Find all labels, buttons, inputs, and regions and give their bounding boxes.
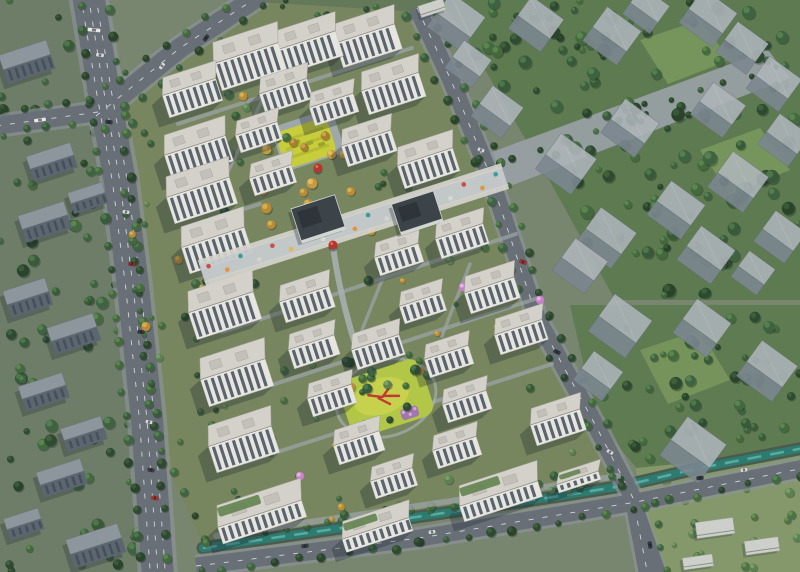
tree-highlight — [579, 513, 583, 517]
tree-highlight — [121, 190, 125, 194]
tree-highlight — [640, 438, 644, 442]
tree-highlight — [788, 393, 792, 397]
tree-highlight — [777, 32, 783, 38]
tree-highlight — [737, 435, 741, 439]
tree-highlight — [704, 152, 711, 159]
tree-highlight — [451, 116, 455, 120]
tree-highlight — [529, 267, 533, 271]
tree-highlight — [114, 560, 119, 565]
tree-highlight — [22, 105, 26, 109]
shop-awning — [238, 254, 243, 259]
tree-highlight — [109, 267, 113, 271]
tree-highlight — [727, 314, 732, 319]
vehicle-glass — [38, 118, 42, 121]
tree-highlight — [407, 352, 410, 355]
tree-highlight — [499, 244, 504, 249]
tree-highlight — [140, 352, 144, 356]
tree-highlight — [14, 482, 19, 487]
tree-highlight — [461, 84, 465, 88]
tree-highlight — [466, 535, 469, 538]
tree-highlight — [589, 399, 593, 403]
shop-awning — [366, 213, 371, 218]
shop-awning — [493, 172, 498, 177]
tree-highlight — [129, 119, 134, 124]
tree-highlight — [491, 64, 494, 67]
tree-highlight — [735, 401, 740, 406]
tree-highlight — [24, 429, 27, 432]
tree-highlight — [445, 476, 450, 481]
car — [740, 468, 747, 473]
tree-highlight — [199, 567, 202, 570]
tree-highlight — [534, 88, 537, 91]
tree-highlight — [150, 316, 153, 319]
tree-highlight — [87, 167, 92, 172]
tree-highlight — [752, 514, 756, 518]
tree-highlight — [93, 519, 99, 525]
tree-highlight — [660, 237, 664, 241]
tree-highlight — [301, 144, 305, 148]
tree-highlight — [575, 44, 578, 47]
tree-highlight — [402, 12, 407, 17]
tree-highlight — [658, 545, 661, 548]
tree-highlight — [138, 309, 141, 312]
tree-highlight — [42, 123, 46, 127]
tree-highlight — [490, 34, 494, 38]
tree-highlight — [337, 496, 340, 499]
shop-awning — [270, 243, 275, 248]
tree-highlight — [148, 141, 152, 145]
tree-highlight — [773, 476, 777, 480]
tree-highlight — [154, 409, 158, 413]
tree-highlight — [81, 529, 86, 534]
tree-highlight — [381, 181, 384, 184]
tree-highlight — [134, 532, 139, 537]
tree-highlight — [162, 530, 167, 535]
tree-highlight — [671, 378, 677, 384]
tree-highlight — [794, 534, 798, 538]
shop-awning — [480, 186, 485, 191]
tree-highlight — [79, 26, 84, 31]
tree-highlight — [104, 417, 110, 423]
car — [696, 476, 703, 481]
tree-highlight — [268, 221, 272, 225]
tree-highlight — [588, 68, 594, 74]
tree-highlight — [364, 7, 367, 10]
tree-highlight — [16, 364, 21, 369]
tree-highlight — [400, 278, 403, 281]
tree-highlight — [488, 198, 493, 203]
tree-highlight — [117, 77, 121, 81]
tree-highlight — [296, 554, 300, 558]
tree-highlight — [646, 385, 650, 389]
pink-blossom-highlight — [537, 297, 541, 301]
tree-highlight — [759, 434, 763, 438]
tree-highlight — [300, 189, 304, 193]
tree-highlight — [443, 537, 446, 540]
tree-highlight — [131, 258, 135, 262]
tree-highlight — [669, 98, 672, 101]
tree-highlight — [195, 47, 199, 51]
tree-highlight — [559, 46, 563, 50]
tree-highlight — [676, 404, 680, 408]
vehicle-glass — [140, 330, 143, 333]
shop-awning — [461, 182, 466, 187]
tree-highlight — [330, 517, 333, 520]
tree-highlight — [79, 3, 83, 7]
tree-highlight — [764, 322, 770, 328]
tree-highlight — [142, 322, 147, 327]
tree-highlight — [435, 331, 438, 334]
tree-highlight — [403, 383, 406, 386]
tree-highlight — [672, 543, 675, 546]
tree-highlight — [652, 196, 656, 200]
tree-highlight — [631, 442, 636, 447]
tree-highlight — [508, 527, 513, 532]
tree-highlight — [473, 101, 477, 105]
tree-highlight — [677, 103, 682, 108]
tree-highlight — [18, 265, 24, 271]
tree-highlight — [162, 505, 166, 509]
tree-highlight — [24, 137, 28, 141]
tree-highlight — [561, 374, 565, 378]
tree-highlight — [583, 109, 588, 114]
tree-highlight — [27, 546, 31, 550]
tree-highlight — [82, 73, 86, 77]
tree-highlight — [624, 201, 628, 205]
tree-highlight — [751, 424, 755, 428]
tree-highlight — [661, 352, 664, 355]
tree-highlight — [780, 423, 785, 428]
tree-highlight — [414, 538, 418, 542]
tree-highlight — [283, 134, 288, 139]
tree-highlight — [666, 426, 672, 432]
tree-highlight — [192, 513, 195, 516]
tree-highlight — [103, 84, 106, 87]
red-sphere-sculpture — [314, 164, 323, 173]
car — [105, 120, 112, 125]
tree-highlight — [82, 50, 87, 55]
tree-highlight — [796, 221, 799, 224]
tree-highlight — [393, 546, 398, 551]
tree-highlight — [596, 167, 599, 170]
tree-highlight — [118, 389, 122, 393]
tree-highlight — [655, 521, 659, 525]
masterplan-scene — [0, 0, 800, 572]
tree-highlight — [751, 312, 756, 317]
tree-highlight — [163, 42, 167, 46]
tree-highlight — [262, 204, 267, 209]
tree-highlight — [673, 109, 680, 116]
tree-highlight — [572, 7, 576, 11]
tree-highlight — [652, 69, 657, 74]
tree-highlight — [689, 530, 693, 534]
tree-highlight — [500, 42, 505, 47]
tree-highlight — [671, 162, 674, 165]
tree-highlight — [158, 459, 163, 464]
tree-highlight — [596, 445, 599, 448]
tree-highlight — [691, 520, 695, 524]
tree-highlight — [743, 355, 746, 358]
tree-highlight — [38, 325, 43, 330]
tree-highlight — [451, 504, 455, 508]
pink-blossom-highlight — [297, 473, 301, 477]
tree-highlight — [159, 323, 163, 327]
tree-highlight — [170, 468, 174, 472]
tree-highlight — [46, 420, 52, 426]
tree-highlight — [53, 288, 57, 292]
tree-highlight — [785, 518, 789, 522]
tree-highlight — [665, 495, 669, 499]
tree-highlight — [526, 249, 530, 253]
tree-highlight — [665, 126, 668, 129]
tree-highlight — [24, 125, 28, 129]
tree-highlight — [177, 65, 180, 68]
tree-highlight — [85, 298, 88, 301]
tree-highlight — [603, 510, 607, 514]
tree-highlight — [359, 375, 363, 379]
vehicle-glass — [131, 262, 134, 265]
tree-highlight — [509, 155, 513, 159]
tree-highlight — [202, 14, 206, 18]
tree-highlight — [742, 563, 746, 567]
tree-highlight — [623, 381, 628, 386]
tree-highlight — [476, 155, 480, 159]
tree-highlight — [322, 132, 326, 136]
tree-highlight — [84, 234, 88, 238]
tree-highlight — [720, 80, 723, 83]
tree-highlight — [750, 564, 754, 568]
tree-highlight — [154, 432, 159, 437]
shop-awning — [384, 216, 389, 221]
tree-highlight — [106, 6, 111, 11]
tree-highlight — [633, 250, 636, 253]
tree-highlight — [642, 503, 646, 507]
tree-highlight — [181, 489, 185, 493]
tree-highlight — [783, 203, 790, 210]
tree-highlight — [698, 160, 703, 165]
tree-highlight — [715, 57, 720, 62]
tree-highlight — [546, 315, 549, 318]
tree-highlight — [534, 524, 538, 528]
tree-highlight — [519, 223, 522, 226]
tree-highlight — [619, 482, 623, 486]
tree-highlight — [240, 17, 244, 21]
tree-highlight — [657, 249, 663, 255]
tree-highlight — [646, 169, 652, 175]
tree-highlight — [431, 77, 435, 81]
tree-highlight — [527, 385, 531, 389]
tree-highlight — [498, 159, 502, 163]
tree-highlight — [113, 59, 116, 62]
tree-highlight — [536, 289, 540, 293]
tree-highlight — [686, 376, 692, 382]
tree-highlight — [719, 487, 722, 490]
tree-highlight — [496, 222, 499, 225]
car — [428, 530, 435, 535]
tree-highlight — [7, 330, 12, 335]
tree-highlight — [609, 473, 613, 477]
tree-highlight — [163, 554, 168, 559]
tree-highlight — [69, 121, 73, 125]
tree-highlight — [97, 298, 103, 304]
tree-highlight — [729, 223, 735, 229]
tree-highlight — [19, 376, 23, 380]
vehicle-glass — [92, 28, 96, 31]
tree-highlight — [248, 563, 252, 567]
car — [301, 544, 308, 549]
tree-highlight — [593, 129, 596, 132]
tree-highlight — [218, 567, 222, 571]
tree-highlight — [223, 5, 227, 9]
tree-highlight — [483, 42, 489, 48]
aerial-masterplan-rendering — [0, 0, 800, 572]
tree-highlight — [604, 420, 608, 424]
tree-highlight — [116, 361, 120, 365]
vehicle-glass — [699, 476, 702, 479]
tree-highlight — [178, 439, 181, 442]
tree-highlight — [195, 373, 198, 376]
tree-highlight — [750, 74, 753, 77]
tree-highlight — [651, 354, 655, 358]
tree-highlight — [93, 148, 97, 152]
tree-highlight — [107, 448, 111, 452]
tree-highlight — [698, 87, 701, 90]
tree-highlight — [704, 193, 708, 197]
shop-awning — [353, 226, 358, 231]
tree-highlight — [692, 184, 698, 190]
tree-highlight — [758, 105, 764, 111]
tree-highlight — [132, 222, 137, 227]
tree-highlight — [581, 206, 588, 213]
tree-highlight — [134, 506, 138, 510]
tree-highlight — [691, 400, 697, 406]
tree-highlight — [137, 553, 142, 558]
tree-highlight — [102, 126, 106, 130]
tree-highlight — [317, 554, 322, 559]
sphere-highlight — [315, 165, 318, 168]
tree-highlight — [658, 184, 661, 187]
tree-highlight — [123, 70, 126, 73]
tree-highlight — [661, 292, 664, 295]
shop-awning — [206, 264, 211, 269]
tree-highlight — [144, 341, 148, 345]
tree-highlight — [664, 245, 668, 249]
tree-highlight — [1, 134, 4, 137]
tree-highlight — [101, 214, 106, 219]
tree-highlight — [315, 12, 318, 15]
tree-highlight — [8, 456, 12, 460]
tree-highlight — [121, 147, 125, 151]
tree-highlight — [122, 111, 126, 115]
tree-highlight — [6, 561, 10, 565]
tree-highlight — [183, 29, 187, 33]
vehicle-glass — [148, 420, 151, 423]
tree-highlight — [699, 551, 702, 554]
tree-highlight — [461, 137, 465, 141]
shop-awning — [257, 257, 262, 262]
tree-highlight — [703, 47, 707, 51]
tree-highlight — [260, 3, 263, 6]
tree-highlight — [416, 358, 419, 361]
tree-highlight — [679, 151, 685, 157]
tree-highlight — [341, 511, 345, 515]
tree-highlight — [607, 466, 611, 470]
tree-highlight — [137, 218, 140, 221]
tree-highlight — [421, 54, 425, 58]
tree-highlight — [145, 400, 149, 404]
tree-highlight — [38, 440, 44, 446]
tree-highlight — [81, 160, 85, 164]
tree-highlight — [551, 101, 557, 107]
tree-highlight — [652, 499, 656, 503]
tree-highlight — [702, 288, 707, 293]
tree-highlight — [570, 449, 573, 452]
tree-highlight — [137, 285, 141, 289]
tree-highlight — [491, 143, 495, 147]
tree-highlight — [146, 363, 151, 368]
tree-highlight — [157, 482, 161, 486]
tree-highlight — [109, 32, 114, 37]
tree-highlight — [720, 235, 724, 239]
tree-highlight — [347, 188, 351, 192]
tree-highlight — [95, 167, 99, 171]
tree-highlight — [114, 328, 117, 331]
tree-highlight — [159, 448, 162, 451]
tree-highlight — [699, 419, 703, 423]
tree-highlight — [686, 112, 689, 115]
tree-highlight — [133, 287, 136, 290]
tree-highlight — [232, 112, 236, 116]
tree-highlight — [492, 47, 498, 53]
tree-highlight — [381, 169, 384, 172]
tree-highlight — [91, 120, 94, 123]
tree-highlight — [130, 231, 134, 235]
tree-highlight — [63, 100, 67, 104]
tree-highlight — [71, 221, 77, 227]
tree-highlight — [631, 507, 634, 510]
tree-highlight — [499, 81, 505, 87]
tree-highlight — [20, 338, 25, 343]
tree-highlight — [113, 315, 117, 319]
tree-highlight — [192, 280, 197, 285]
tree-highlight — [694, 494, 698, 498]
tree-highlight — [139, 94, 143, 98]
tree-highlight — [203, 539, 207, 543]
tree-highlight — [56, 15, 59, 18]
tree-highlight — [487, 528, 492, 533]
tree-highlight — [308, 179, 313, 184]
tree-highlight — [682, 393, 686, 397]
tree-highlight — [550, 472, 554, 476]
tree-highlight — [14, 179, 18, 183]
tree-highlight — [551, 2, 556, 7]
tree-highlight — [45, 101, 49, 105]
tree-highlight — [141, 130, 145, 134]
tree-highlight — [231, 488, 234, 491]
tree-highlight — [789, 114, 795, 120]
tree-highlight — [373, 4, 376, 7]
vehicle-glass — [150, 468, 153, 471]
tree-highlight — [128, 173, 133, 178]
tree-highlight — [786, 488, 791, 493]
tree-highlight — [788, 511, 792, 515]
tree-highlight — [547, 355, 551, 359]
tree-highlight — [271, 559, 275, 563]
tree-highlight — [123, 129, 128, 134]
shop-awning — [225, 267, 230, 272]
tree-highlight — [121, 103, 126, 108]
tree-highlight — [142, 222, 145, 225]
